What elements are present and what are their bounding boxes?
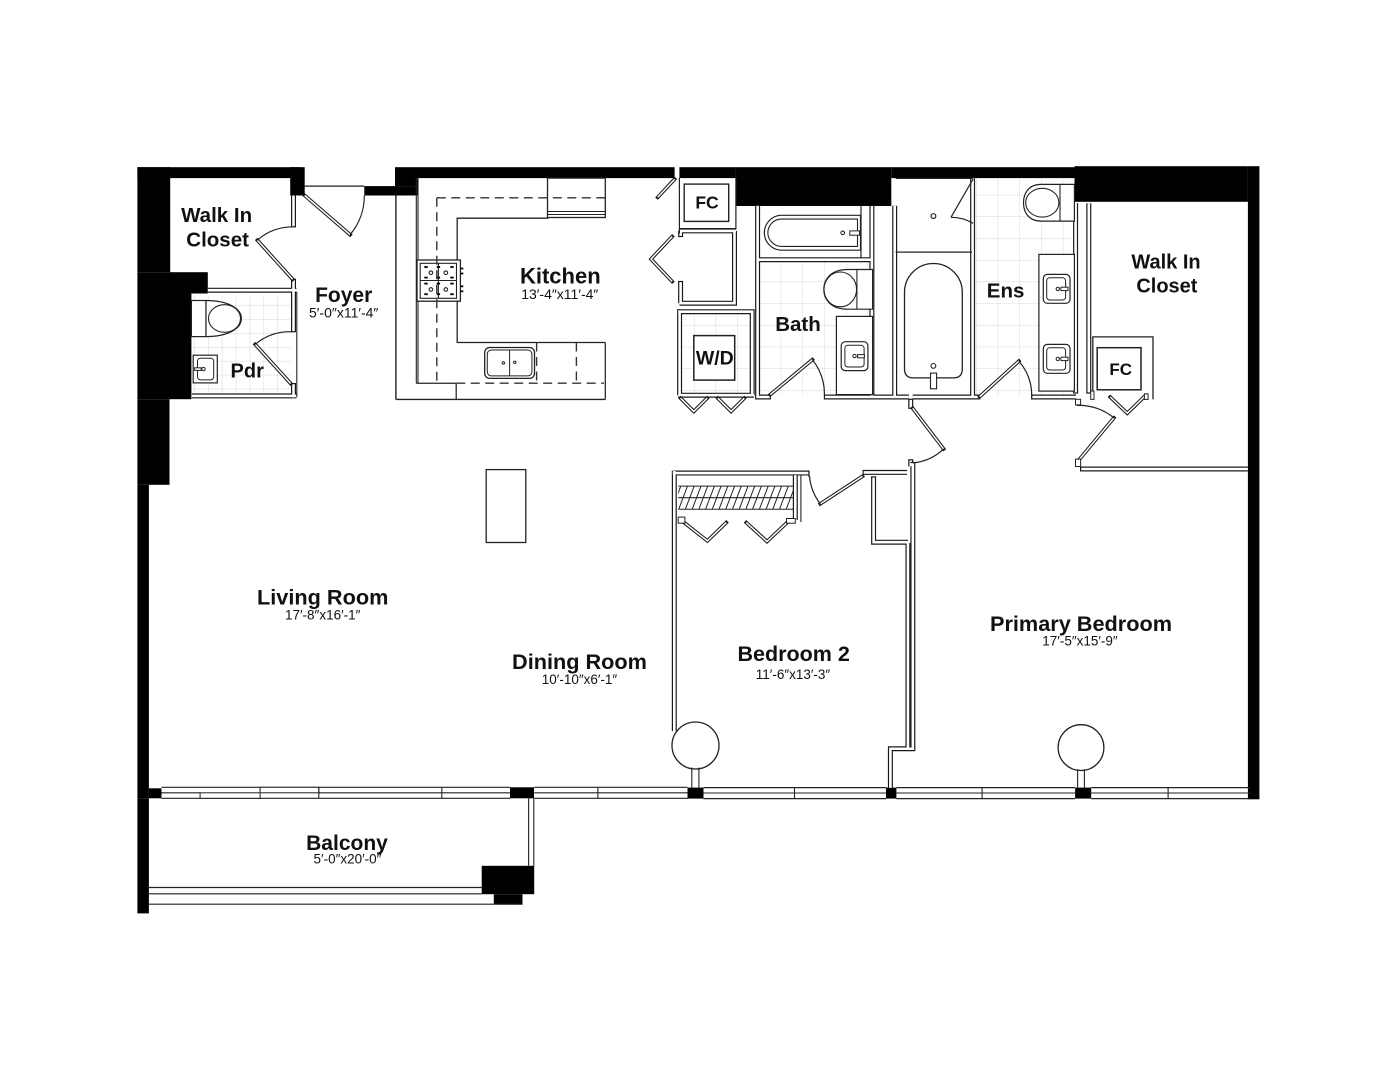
svg-text:Ens: Ens [987, 279, 1025, 302]
svg-text:Closet: Closet [186, 229, 249, 252]
svg-text:Kitchen: Kitchen [520, 264, 601, 289]
svg-text:10′-10″x6′-1″: 10′-10″x6′-1″ [542, 672, 618, 687]
svg-text:Bath: Bath [775, 313, 821, 336]
svg-text:Primary Bedroom: Primary Bedroom [990, 611, 1172, 636]
svg-text:Walk In: Walk In [1131, 251, 1200, 273]
svg-text:Closet: Closet [1136, 276, 1197, 298]
svg-text:W/D: W/D [696, 348, 734, 370]
svg-text:Walk In: Walk In [181, 204, 252, 227]
svg-text:17′-5″x15′-9″: 17′-5″x15′-9″ [1042, 634, 1118, 649]
svg-text:5′-0″x11′-4″: 5′-0″x11′-4″ [309, 305, 378, 321]
svg-text:Living Room: Living Room [257, 585, 388, 610]
svg-text:5′-0″x20′-0″: 5′-0″x20′-0″ [314, 852, 382, 867]
svg-text:13′-4″x11′-4″: 13′-4″x11′-4″ [521, 286, 598, 302]
svg-text:Pdr: Pdr [231, 361, 265, 383]
svg-text:FC: FC [1109, 360, 1132, 379]
svg-text:11′-6″x13′-3″: 11′-6″x13′-3″ [756, 667, 831, 682]
svg-text:Dining Room: Dining Room [512, 649, 647, 674]
svg-text:Bedroom 2: Bedroom 2 [738, 642, 850, 666]
svg-text:FC: FC [695, 193, 719, 213]
svg-text:17′-8″x16′-1″: 17′-8″x16′-1″ [285, 608, 361, 623]
